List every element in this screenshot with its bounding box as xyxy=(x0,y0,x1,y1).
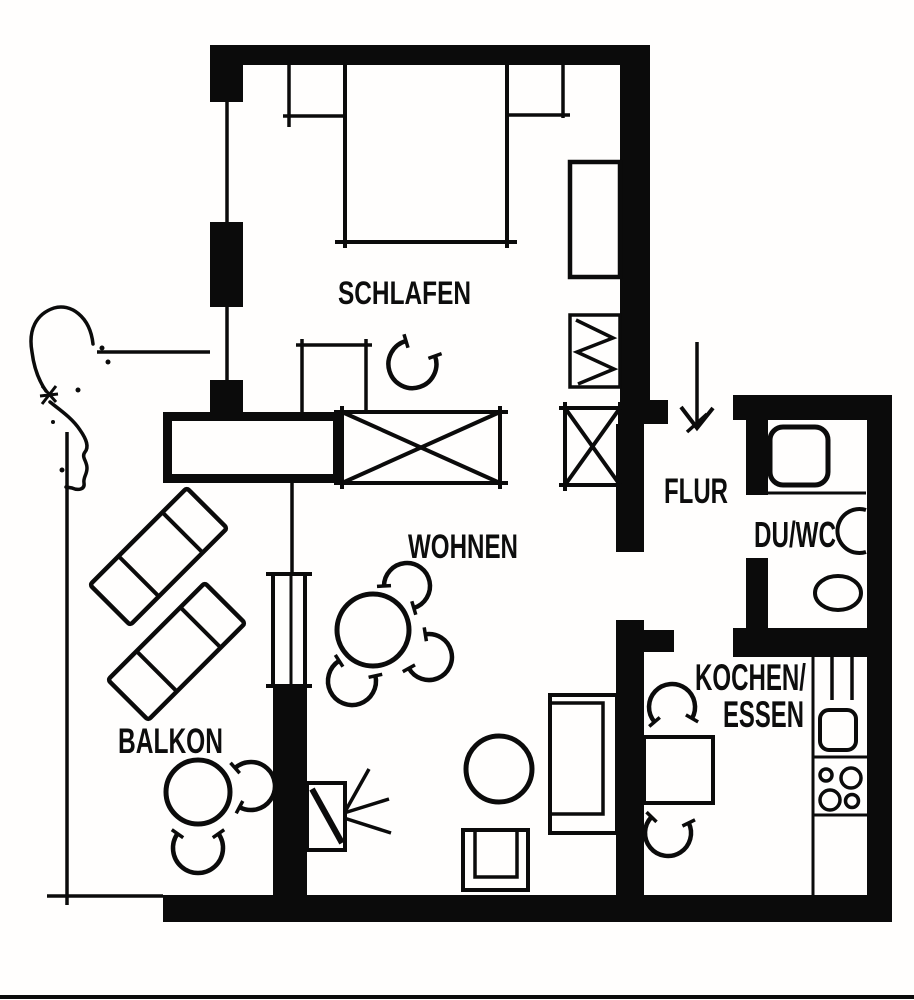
wall-duwc-west-lower xyxy=(746,558,768,630)
balcony-chair-east xyxy=(231,762,275,813)
room-flur: FLUR xyxy=(664,342,728,511)
sideboard-thick-box xyxy=(168,417,338,479)
page-bottom-rule xyxy=(0,995,914,999)
balcony-table-round xyxy=(166,760,230,824)
kitchen-chair-north xyxy=(649,684,698,726)
kitchen-faucet-lines xyxy=(832,656,852,700)
room-schlafen: SCHLAFEN xyxy=(283,65,620,412)
room-balkon: BALKON xyxy=(90,488,275,873)
sun-lounger-1 xyxy=(90,488,227,625)
balcony-door xyxy=(266,574,312,687)
tv-with-rays xyxy=(307,769,391,850)
radiator-zigzag-cabinet xyxy=(570,315,620,387)
armchair-round xyxy=(466,736,532,802)
room-kochen-essen: KOCHEN/ ESSEN xyxy=(644,650,867,895)
kitchen-table xyxy=(644,737,713,803)
bedside-shelves xyxy=(283,65,570,127)
tree-sketch xyxy=(31,307,111,489)
label-schlafen: SCHLAFEN xyxy=(338,275,471,311)
label-essen: ESSEN xyxy=(723,694,804,735)
dressing-chair-arc xyxy=(388,334,441,388)
wall-stub-entry-west xyxy=(620,400,668,424)
sun-lounger-2 xyxy=(108,583,245,720)
wall-window-pier-upper xyxy=(210,222,243,307)
wall-top xyxy=(210,45,650,102)
floor-plan-page: SCHLAFEN FLUR xyxy=(0,0,914,1000)
side-table-square xyxy=(463,830,528,890)
label-duwc: DU/WC xyxy=(754,514,836,555)
label-flur: FLUR xyxy=(664,472,728,511)
label-balkon: BALKON xyxy=(118,722,223,761)
washbasin xyxy=(837,509,866,553)
wall-bottom-exterior xyxy=(163,895,892,922)
divider-furniture-row xyxy=(168,402,627,491)
stove-four-burners xyxy=(820,768,861,810)
kitchen-sink xyxy=(820,710,856,750)
wardrobe xyxy=(570,162,620,277)
crossed-wardrobe-left xyxy=(334,406,508,489)
dining-table-round xyxy=(337,594,409,666)
wall-balcony-pier xyxy=(273,687,307,900)
wall-right-bedroom xyxy=(620,60,650,400)
room-wohnen: WOHNEN xyxy=(266,528,617,890)
entrance-arrow xyxy=(681,342,713,432)
label-kochen: KOCHEN/ xyxy=(695,657,806,698)
floor-plan-drawing: SCHLAFEN FLUR xyxy=(0,0,914,1000)
toilet xyxy=(815,576,861,610)
wall-duwc-west-upper xyxy=(746,418,768,495)
label-wohnen: WOHNEN xyxy=(408,528,518,566)
kitchen-chair-south xyxy=(645,812,695,856)
balcony-chair-south xyxy=(172,830,224,873)
sofa xyxy=(550,695,617,833)
room-duwc: DU/WC xyxy=(754,427,866,610)
crossed-wardrobe-right xyxy=(559,402,626,491)
double-bed xyxy=(335,65,517,248)
wall-window-pier-lower xyxy=(210,380,243,412)
shower-tray xyxy=(770,427,828,485)
dressing-table xyxy=(296,339,372,412)
